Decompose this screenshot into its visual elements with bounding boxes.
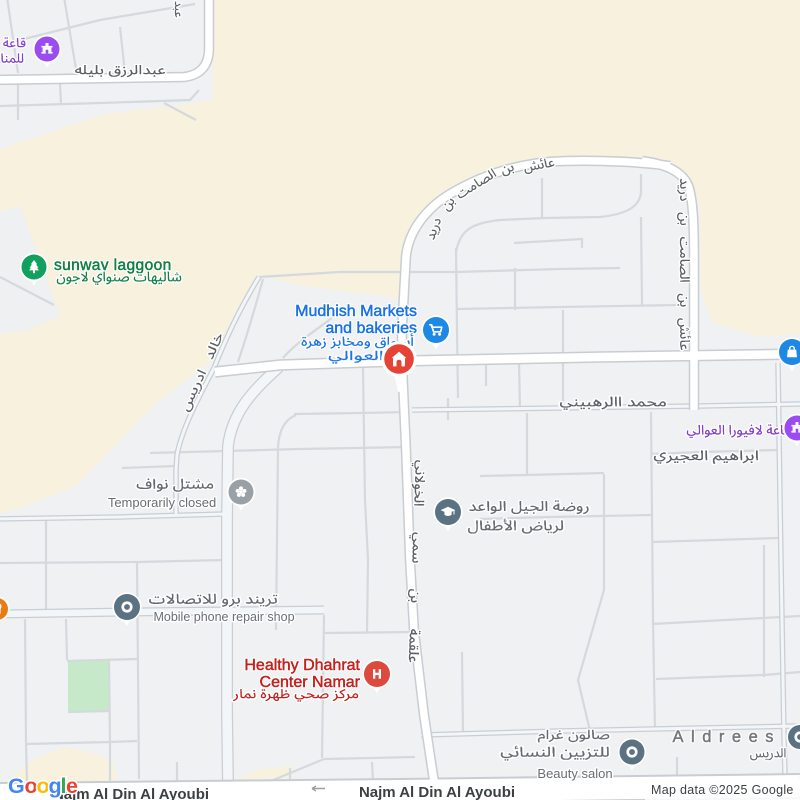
svg-text:Najm Al Din Al Ayoubi: Najm Al Din Al Ayoubi [359,784,515,800]
svg-text:Beauty salon: Beauty salon [537,766,612,781]
svg-text:G: G [8,774,25,798]
svg-text:Healthy Dhahrat: Healthy Dhahrat [244,657,360,674]
svg-text:Map data ©2025 Google: Map data ©2025 Google [651,783,794,797]
svg-text:and bakeries: and bakeries [325,320,417,337]
svg-text:Aldrees: Aldrees [673,728,781,746]
svg-text:Mobile phone repair shop: Mobile phone repair shop [153,610,294,624]
svg-text:Temporarily closed: Temporarily closed [108,495,216,510]
svg-text:sunway laggoon: sunway laggoon [54,257,172,274]
svg-text:Mudhish Markets: Mudhish Markets [295,303,417,320]
svg-text:e: e [66,774,78,798]
